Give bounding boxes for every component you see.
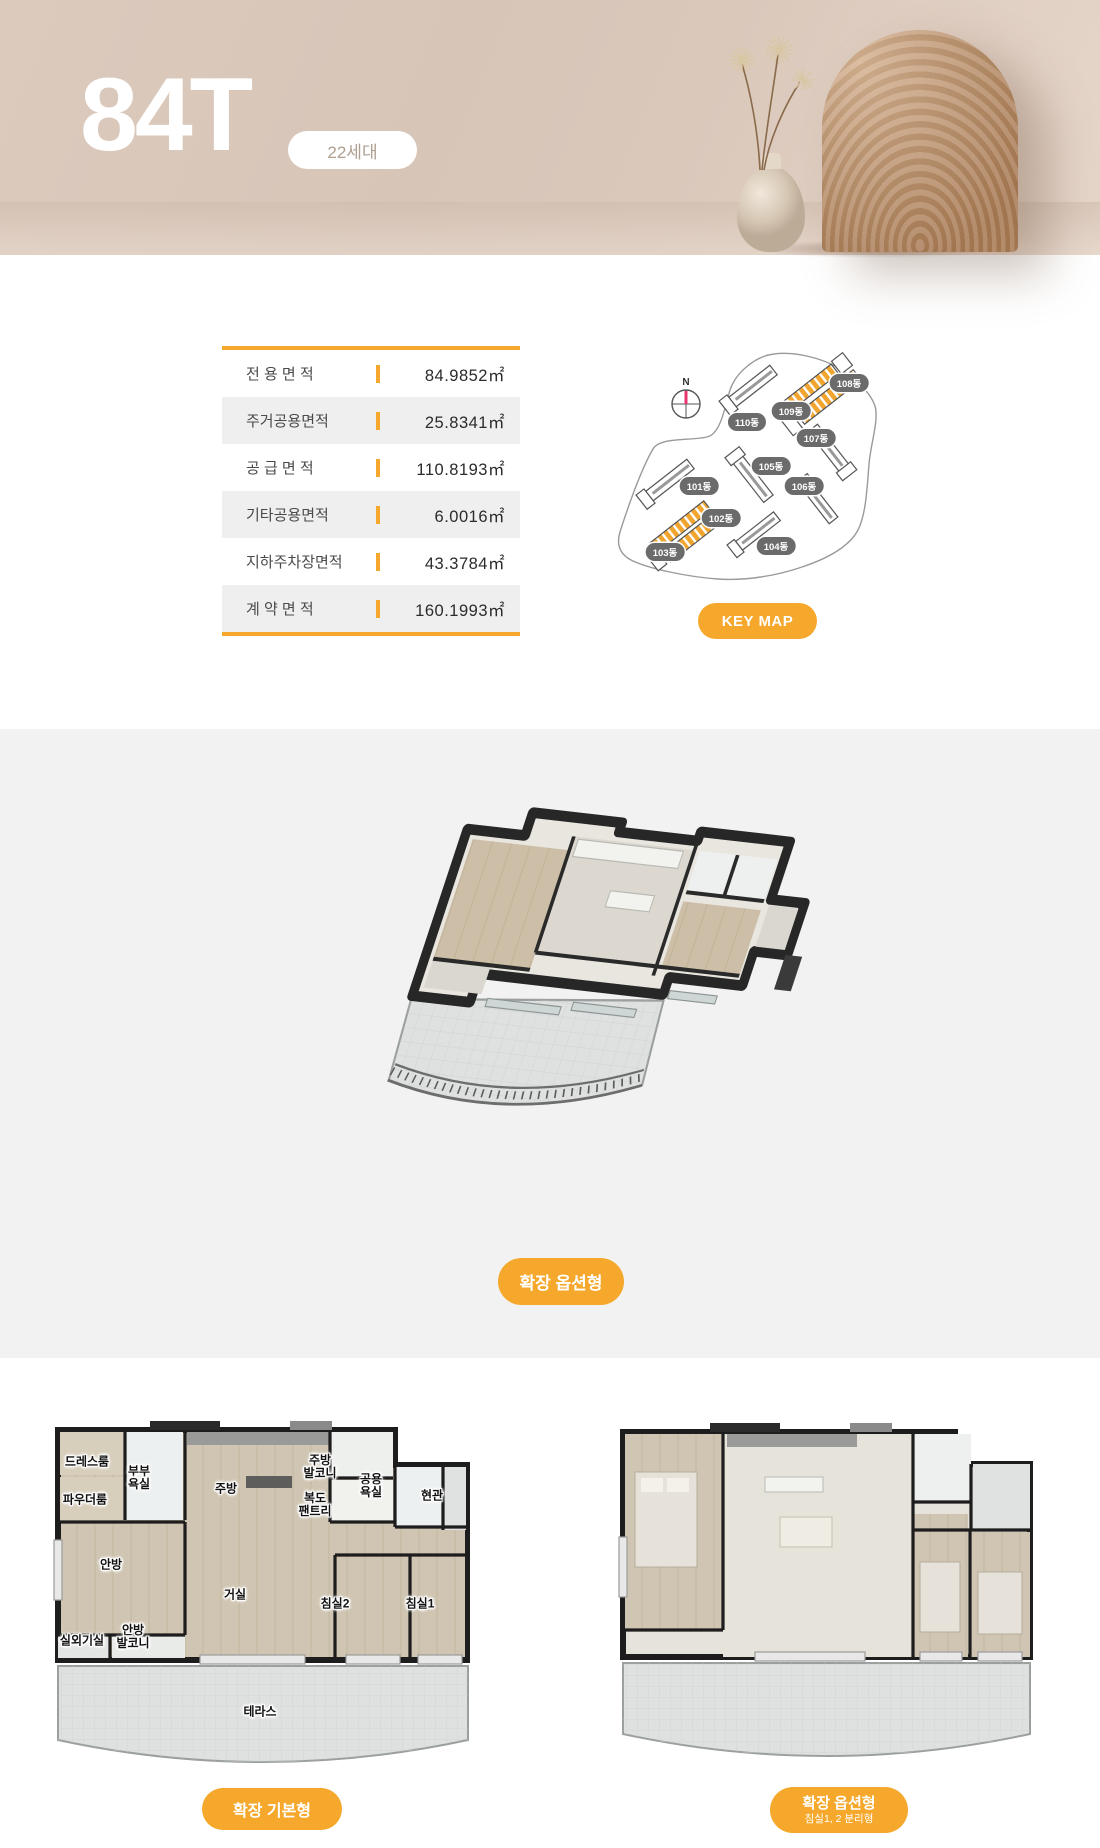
building-pill-107: 107동 (797, 429, 836, 447)
area-label: 공 급 면 적 (246, 457, 372, 478)
area-label: 지하주차장면적 (246, 551, 372, 572)
compass-icon: N (672, 377, 700, 418)
orange-divider (376, 459, 380, 477)
room-label-bed1: 침실1 (406, 1597, 435, 1610)
site-key-map: N (590, 350, 1010, 595)
room-label-master: 안방 (100, 1558, 122, 1571)
kitchen-island (246, 1476, 292, 1488)
building-pill-106: 106동 (785, 477, 824, 495)
building-pill-110: 110동 (728, 413, 766, 431)
pillow (641, 1478, 663, 1492)
room-label-ac-room: 실외기실 (60, 1634, 104, 1647)
area-value: 43.3784㎡ (388, 550, 505, 574)
bed-furniture (978, 1572, 1022, 1634)
key-map-button[interactable]: KEY MAP (698, 603, 817, 639)
building-pill-104: 104동 (757, 537, 796, 555)
pillow (667, 1478, 689, 1492)
vase-photo (737, 166, 805, 252)
wall-block (710, 1423, 780, 1432)
building-pill-102: 102동 (702, 509, 741, 527)
iso-entry-door (774, 955, 802, 991)
room-label-kitchen-balcony: 주방 발코니 (303, 1454, 336, 1480)
area-label: 전 용 면 적 (246, 363, 372, 384)
room-label-powder: 파우더룸 (63, 1493, 107, 1506)
area-value: 6.0016㎡ (388, 503, 505, 527)
bath-area (913, 1434, 971, 1502)
plan-3d-caption-button[interactable]: 확장 옵션형 (498, 1258, 624, 1305)
room-label-common-bath: 공용 욕실 (360, 1473, 382, 1499)
wall-block (290, 1421, 332, 1430)
household-count-badge: 22세대 (288, 131, 417, 169)
isometric-floor-plan (245, 766, 855, 1241)
area-value: 110.8193㎡ (388, 456, 505, 480)
bed-furniture (920, 1562, 960, 1632)
dried-flowers-photo (700, 30, 850, 175)
building-pill-103: 103동 (646, 543, 685, 561)
room-label-living: 거실 (224, 1588, 246, 1601)
kitchen-counter (727, 1434, 857, 1447)
orange-divider (376, 412, 380, 430)
orange-divider (376, 365, 380, 383)
plan-option-caption-sub: 침실1, 2 분리형 (805, 1813, 874, 1825)
area-value: 160.1993㎡ (388, 597, 505, 621)
floor-plan-option (615, 1422, 1040, 1772)
area-table: 전 용 면 적 84.9852㎡ 주거공용면적 25.8341㎡ 공 급 면 적… (222, 346, 520, 636)
building-pill-105: 105동 (752, 457, 791, 475)
header-banner: 84T 22세대 (0, 0, 1100, 255)
entrance-area (443, 1467, 466, 1530)
area-label: 주거공용면적 (246, 410, 372, 431)
orange-divider (376, 600, 380, 618)
room-label-bed2: 침실2 (321, 1597, 350, 1610)
room-label-dress: 드레스룸 (65, 1455, 109, 1468)
plan-option-caption-main: 확장 옵션형 (802, 1795, 875, 1812)
building-pill-101: 101동 (680, 477, 719, 495)
floor-plan-option-drawing (615, 1422, 1040, 1772)
kitchen-counter (187, 1432, 329, 1445)
orange-divider (376, 553, 380, 571)
area-label: 계 약 면 적 (246, 598, 372, 619)
table-row: 계 약 면 적 160.1993㎡ (222, 585, 520, 632)
arch-sculpture-photo (822, 30, 1018, 252)
plan-option-caption-button[interactable]: 확장 옵션형 침실1, 2 분리형 (770, 1787, 908, 1833)
table-row: 지하주차장면적 43.3784㎡ (222, 538, 520, 585)
area-label: 기타공용면적 (246, 504, 372, 525)
compass-north-label: N (682, 377, 689, 388)
wall-block (850, 1423, 892, 1432)
dining-table (780, 1517, 832, 1547)
building-pill-109: 109동 (772, 402, 811, 420)
room-label-kitchen: 주방 (215, 1482, 237, 1495)
unit-type-title: 84T (80, 58, 250, 172)
room-label-pantry: 복도 팬트리 (298, 1492, 331, 1518)
wall-block (150, 1421, 220, 1430)
room-label-master-balcony: 안방 발코니 (116, 1624, 149, 1650)
area-value: 84.9852㎡ (388, 362, 505, 386)
building-pill-108: 108동 (830, 374, 869, 392)
area-value: 25.8341㎡ (388, 409, 505, 433)
table-row: 주거공용면적 25.8341㎡ (222, 397, 520, 444)
table-row: 기타공용면적 6.0016㎡ (222, 491, 520, 538)
entrance-area (973, 1464, 1030, 1530)
room-label-entrance: 현관 (421, 1489, 443, 1502)
table-row: 전 용 면 적 84.9852㎡ (222, 350, 520, 397)
kitchen-island (765, 1477, 823, 1492)
floor-plan-basic: 드레스룸 부부 욕실 파우더룸 주방 주방 발코니 복도 팬트리 공용 욕실 현… (50, 1420, 470, 1780)
plan-basic-caption-button[interactable]: 확장 기본형 (202, 1788, 342, 1830)
room-label-master-bath: 부부 욕실 (128, 1465, 150, 1491)
room-label-terrace: 테라스 (243, 1705, 276, 1718)
orange-divider (376, 506, 380, 524)
table-row: 공 급 면 적 110.8193㎡ (222, 444, 520, 491)
